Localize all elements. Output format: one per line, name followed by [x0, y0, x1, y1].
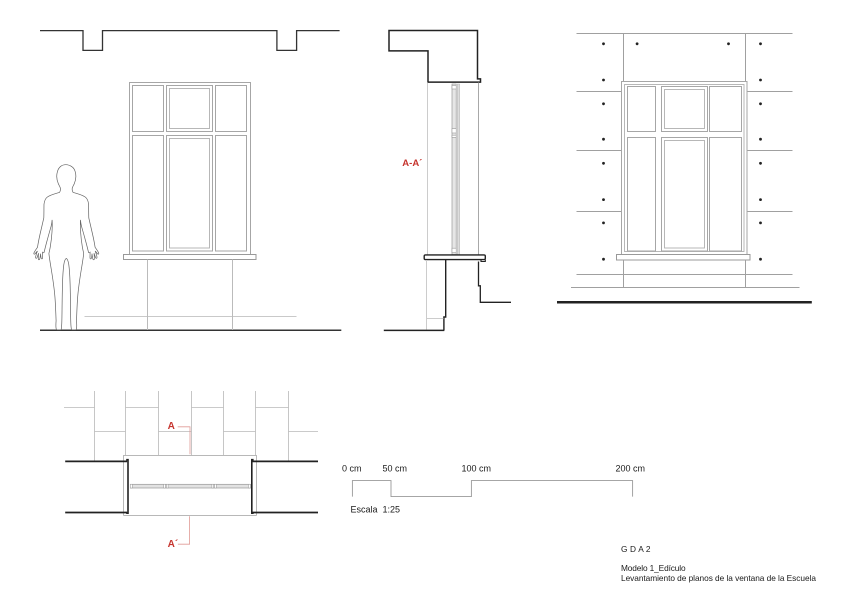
svg-text:A: A [168, 421, 175, 432]
svg-text:0 cm: 0 cm [342, 463, 362, 473]
svg-text:Escala 1:25: Escala 1:25 [351, 504, 401, 514]
svg-text:100 cm: 100 cm [462, 463, 492, 473]
svg-text:50 cm: 50 cm [383, 463, 408, 473]
svg-text:A´: A´ [168, 539, 179, 550]
svg-text:Levantamiento de planos de la: Levantamiento de planos de la ventana de… [621, 573, 816, 583]
svg-text:G D A 2: G D A 2 [621, 544, 651, 554]
svg-text:200 cm: 200 cm [616, 463, 646, 473]
svg-text:Modelo 1_Edículo: Modelo 1_Edículo [621, 563, 686, 573]
svg-text:A-A´: A-A´ [402, 158, 422, 169]
